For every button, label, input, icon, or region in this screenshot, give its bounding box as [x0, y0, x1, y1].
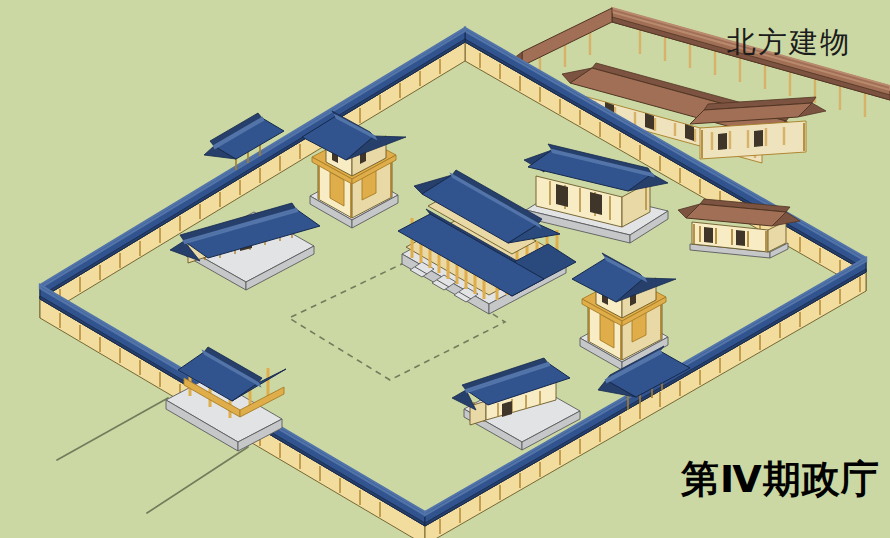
- northwest-tower: [302, 111, 406, 228]
- north-buildings-label: 北方建物: [727, 25, 851, 59]
- east-outbuilding: [678, 199, 800, 258]
- north-lower-corridor: [690, 97, 826, 159]
- diagram-canvas: 北方建物 第Ⅳ期政庁: [0, 0, 890, 538]
- south-gate: [166, 347, 286, 451]
- title-label: 第Ⅳ期政庁: [680, 457, 880, 501]
- reconstruction-diagram: 北方建物 第Ⅳ期政庁: [0, 0, 890, 538]
